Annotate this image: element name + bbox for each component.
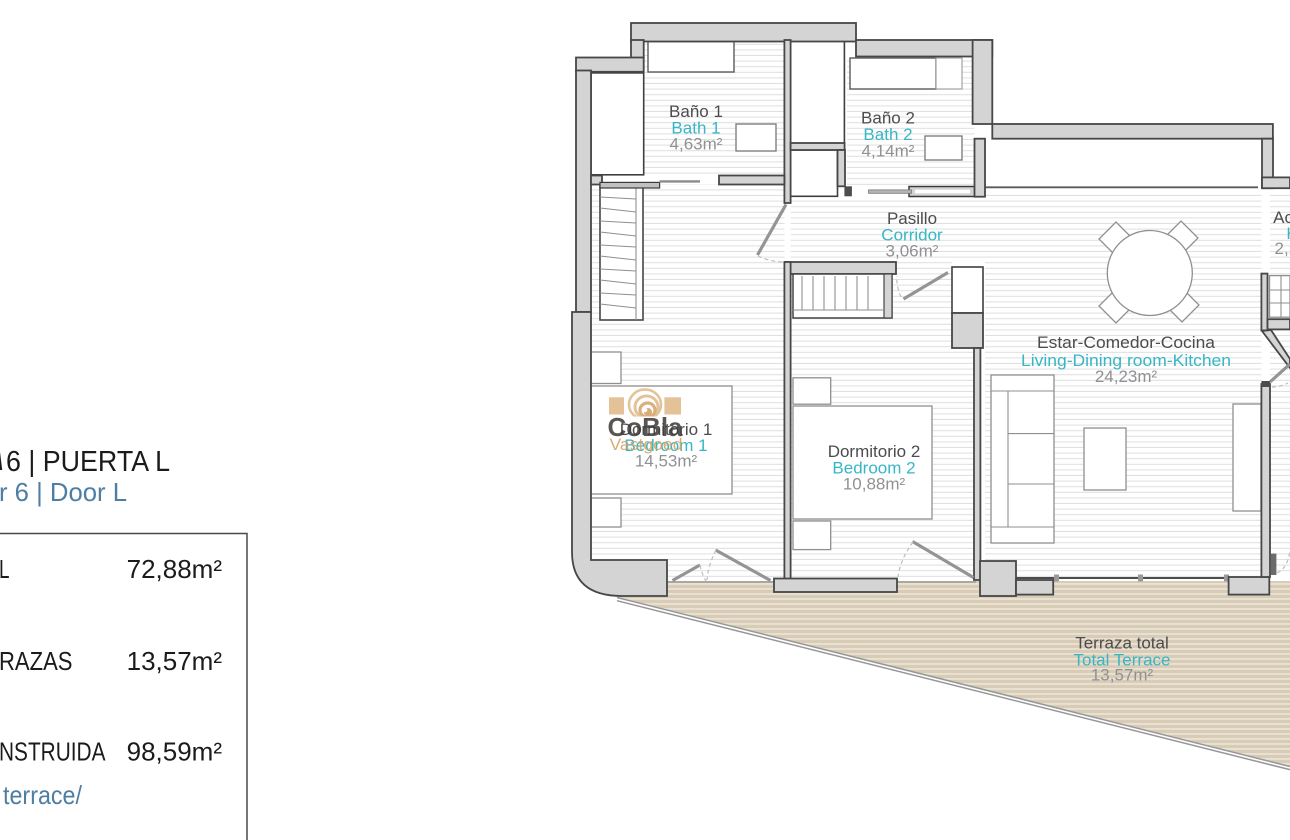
svg-text:10,88m²: 10,88m² bbox=[843, 475, 906, 494]
svg-text:13,57m²: 13,57m² bbox=[1091, 666, 1154, 685]
svg-text:24,23m²: 24,23m² bbox=[1095, 367, 1158, 386]
svg-text:14,53m²: 14,53m² bbox=[635, 452, 698, 471]
svg-text:6 | PUERTA L: 6 | PUERTA L bbox=[6, 446, 170, 478]
svg-text:2,27m²: 2,27m² bbox=[1275, 239, 1290, 258]
svg-text:r 6 | Door L: r 6 | Door L bbox=[0, 477, 127, 507]
svg-text:98,59m²: 98,59m² bbox=[127, 737, 223, 767]
svg-text:13,57m²: 13,57m² bbox=[127, 646, 223, 676]
svg-text:Vastgoed: Vastgoed bbox=[610, 435, 683, 454]
svg-text:NSTRUIDA: NSTRUIDA bbox=[0, 737, 106, 767]
svg-text:Estar-Comedor-Cocina: Estar-Comedor-Cocina bbox=[1037, 333, 1216, 352]
svg-text:RAZAS: RAZAS bbox=[0, 646, 73, 676]
svg-text:3,06m²: 3,06m² bbox=[886, 242, 939, 261]
svg-text:4,63m²: 4,63m² bbox=[670, 135, 723, 154]
svg-text:4,14m²: 4,14m² bbox=[862, 142, 915, 161]
svg-text:terrace/: terrace/ bbox=[3, 780, 83, 810]
svg-text:72,88m²: 72,88m² bbox=[127, 554, 223, 584]
svg-text:L: L bbox=[0, 554, 10, 584]
